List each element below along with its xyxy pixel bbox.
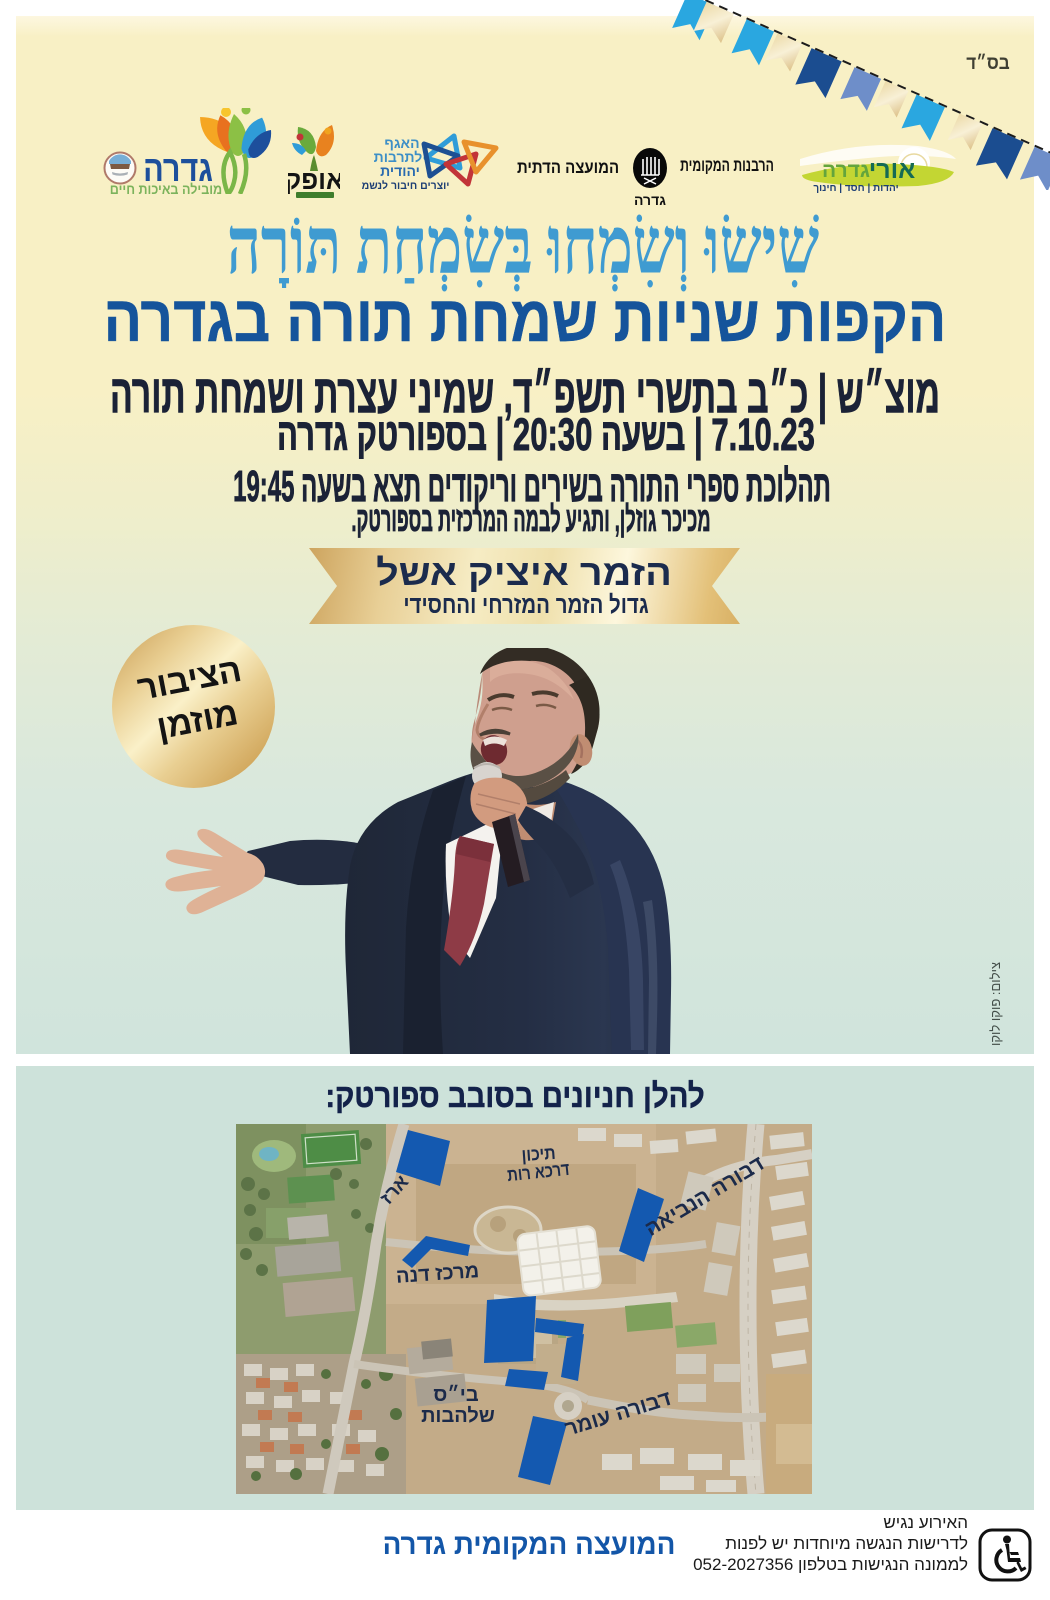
- svg-text:יהדות | חסד | חינוך: יהדות | חסד | חינוך: [813, 183, 898, 194]
- svg-text:מובילה באיכות חיים: מובילה באיכות חיים: [110, 181, 222, 194]
- svg-text:המועצה הדתית: המועצה הדתית: [517, 159, 619, 177]
- svg-text:הרבנות המקומית: הרבנות המקומית: [680, 157, 774, 175]
- svg-text:בי״ס: בי״ס: [433, 1384, 478, 1406]
- svg-text:יוצרים חיבור לנשמה: יוצרים חיבור לנשמה: [362, 180, 449, 192]
- svg-text:אופק: אופק: [288, 165, 340, 195]
- svg-text:אורי: אורי: [869, 156, 916, 184]
- svg-text:גדרה: גדרה: [822, 159, 870, 182]
- svg-text:יהודית: יהודית: [380, 163, 420, 179]
- svg-text:שלהבות: שלהבות: [421, 1405, 495, 1427]
